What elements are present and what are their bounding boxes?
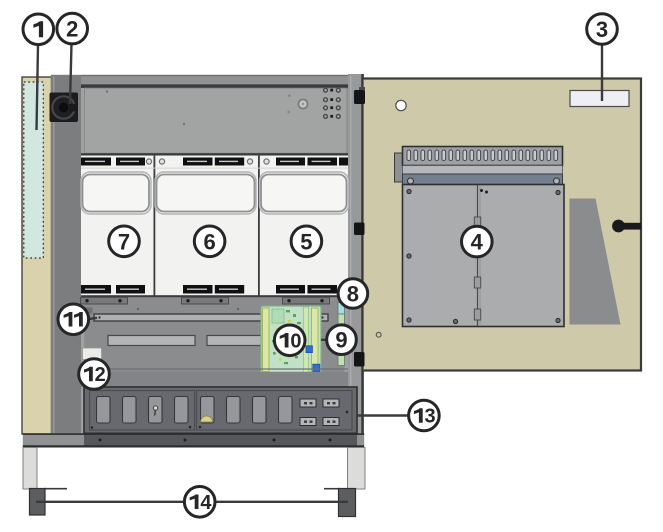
svg-text:8: 8 <box>347 282 359 307</box>
svg-text:7: 7 <box>118 229 130 254</box>
svg-text:5: 5 <box>300 229 312 254</box>
svg-text:3: 3 <box>425 406 436 428</box>
svg-text:9: 9 <box>335 328 347 353</box>
svg-text:4: 4 <box>200 492 212 514</box>
svg-text:4: 4 <box>471 230 484 255</box>
svg-text:6: 6 <box>203 229 215 254</box>
svg-text:2: 2 <box>66 17 78 42</box>
svg-text:3: 3 <box>596 17 608 42</box>
svg-text:0: 0 <box>290 331 301 353</box>
svg-text:2: 2 <box>95 364 106 386</box>
